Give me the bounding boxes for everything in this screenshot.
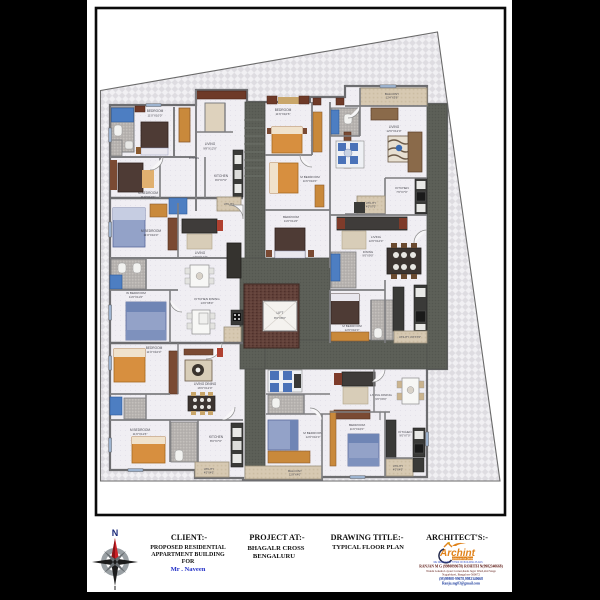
svg-text:CLIENT:-: CLIENT:-: [171, 533, 208, 542]
svg-text:(M)99808-99678,9982340668: (M)99808-99678,9982340668: [439, 577, 483, 581]
svg-text:LIFT: LIFT: [277, 311, 284, 315]
svg-text:12'0"X10'0": 12'0"X10'0": [345, 328, 360, 332]
svg-text:14'6"X8'0": 14'6"X8'0": [200, 301, 213, 305]
svg-text:4'0"X7'0": 4'0"X7'0": [366, 204, 376, 208]
svg-text:11'0"X11'6": 11'0"X11'6": [284, 219, 298, 223]
svg-text:9'0"X9'0": 9'0"X9'0": [375, 397, 387, 401]
svg-text:11'6"X10'0": 11'6"X10'0": [303, 179, 318, 183]
svg-text:Architecture for Dreams: Architecture for Dreams: [450, 557, 476, 560]
svg-text:TYPICAL FLOOR PLAN: TYPICAL FLOOR PLAN: [332, 544, 404, 551]
svg-text:8'0"X8'0": 8'0"X8'0": [274, 316, 286, 320]
svg-text:16'6"X12'0": 16'6"X12'0": [197, 386, 212, 390]
svg-text:12'0"X12'0": 12'0"X12'0": [369, 239, 384, 243]
svg-text:Mr . Naveen: Mr . Naveen: [171, 566, 206, 573]
svg-text:12'0"X12'0": 12'0"X12'0": [386, 129, 401, 133]
svg-text:BEDROOM: BEDROOM: [147, 109, 164, 113]
svg-text:BALCONY: BALCONY: [288, 469, 302, 473]
svg-text:Ranju.mg03@gmail.com: Ranju.mg03@gmail.com: [442, 582, 480, 586]
svg-text:DINING: DINING: [189, 156, 200, 160]
svg-text:UTILITY: UTILITY: [393, 464, 404, 468]
svg-text:11'0"X11'6": 11'0"X11'6": [133, 432, 148, 436]
svg-text:9'0"X9'0": 9'0"X9'0": [362, 254, 373, 258]
svg-text:UTILITY 4'0"X7'0": UTILITY 4'0"X7'0": [399, 335, 421, 339]
svg-text:12'0"X10'0": 12'0"X10'0": [306, 435, 321, 439]
svg-text:LIVING: LIVING: [205, 142, 216, 146]
svg-text:BENGALURU: BENGALURU: [253, 553, 295, 560]
svg-text:4'0"X4'0": 4'0"X4'0": [204, 470, 214, 474]
svg-text:APPARTMENT BUILDING: APPARTMENT BUILDING: [151, 552, 225, 558]
svg-text:11'0"X11'0": 11'0"X11'0": [141, 195, 156, 199]
svg-text:12'4"X3'6": 12'4"X3'6": [386, 96, 399, 100]
svg-text:9'0"X7'0": 9'0"X7'0": [399, 434, 410, 438]
svg-text:UTILITY: UTILITY: [366, 201, 377, 205]
svg-text:FOR: FOR: [182, 559, 195, 565]
svg-text:11'0"X11'0": 11'0"X11'0": [129, 295, 143, 299]
svg-text:PROJECT AT:-: PROJECT AT:-: [249, 533, 305, 542]
svg-text:11'6"X10'6": 11'6"X10'6": [275, 112, 290, 116]
svg-text:11'0"X10'0": 11'0"X10'0": [143, 233, 158, 237]
svg-text:ARCHITECT'S:-: ARCHITECT'S:-: [426, 533, 488, 542]
svg-text:11'0"X10'0": 11'0"X10'0": [350, 427, 365, 431]
svg-text:12'8"X4'0": 12'8"X4'0": [289, 473, 301, 477]
svg-text:11'0"X10'0": 11'0"X10'0": [146, 350, 161, 354]
svg-text:7'0"X7'0": 7'0"X7'0": [396, 190, 408, 194]
svg-text:8'0"X7'0": 8'0"X7'0": [210, 439, 222, 443]
svg-text:BHAGALR CROSS: BHAGALR CROSS: [248, 545, 305, 552]
svg-text:N: N: [112, 528, 119, 538]
svg-text:11'0"X10'0": 11'0"X10'0": [147, 114, 162, 118]
svg-text:PROPOSED RESIDENTIAL: PROPOSED RESIDENTIAL: [150, 545, 226, 551]
svg-text:UTILITY: UTILITY: [204, 467, 215, 471]
svg-text:9'0"X7'0": 9'0"X7'0": [215, 178, 227, 182]
svg-text:4'0"X4'0": 4'0"X4'0": [393, 467, 403, 471]
svg-text:9'8"X12'0": 9'8"X12'0": [203, 147, 217, 151]
svg-text:DRAWING TITLE:-: DRAWING TITLE:-: [331, 533, 404, 542]
